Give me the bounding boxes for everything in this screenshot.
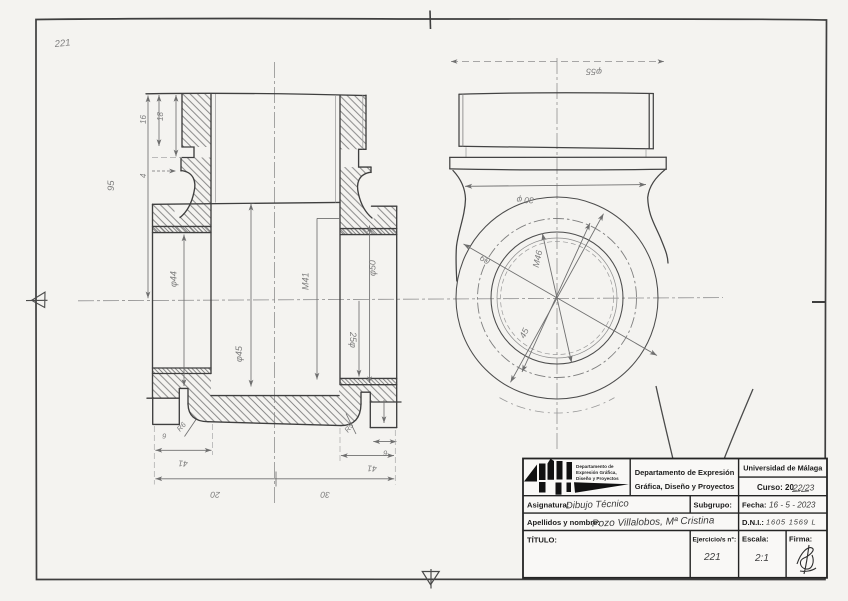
svg-text:D.N.I.:: D.N.I.:: [742, 518, 764, 527]
svg-text:TÍTULO:: TÍTULO:: [527, 536, 557, 545]
svg-text:Fecha:: Fecha:: [742, 501, 766, 510]
svg-text:Escala:: Escala:: [742, 535, 769, 544]
svg-text:Gráfica, Diseño y Proyectos: Gráfica, Diseño y Proyectos: [635, 482, 735, 491]
svg-text:1605 1569 L: 1605 1569 L: [766, 518, 817, 527]
svg-text:Ejercicio/s n°:: Ejercicio/s n°:: [693, 536, 737, 544]
svg-text:Apellidos y nombre:: Apellidos y nombre:: [527, 518, 600, 527]
svg-text:Departamento de Expresión: Departamento de Expresión: [635, 468, 735, 477]
svg-text:4: 4: [139, 173, 148, 178]
svg-text:221: 221: [703, 552, 721, 563]
svg-text:Firma:: Firma:: [789, 535, 812, 544]
svg-text:Departamento de: Departamento de: [576, 464, 614, 469]
svg-text:30: 30: [320, 490, 330, 500]
svg-text:φ50: φ50: [368, 260, 378, 276]
svg-text:41: 41: [367, 463, 377, 473]
svg-text:2:1: 2:1: [754, 553, 769, 564]
svg-text:221: 221: [53, 37, 71, 50]
svg-text:18: 18: [156, 112, 165, 121]
svg-text:Universidad de Málaga: Universidad de Málaga: [743, 464, 823, 473]
svg-text:Subgrupo:: Subgrupo:: [694, 501, 732, 510]
svg-text:M41: M41: [301, 272, 311, 290]
svg-text:20: 20: [210, 490, 221, 500]
svg-text:95: 95: [106, 180, 117, 191]
svg-text:φ55: φ55: [585, 67, 602, 77]
svg-text:φ45: φ45: [234, 345, 244, 362]
svg-text:41: 41: [178, 458, 188, 468]
svg-text:16 - 5 - 2023: 16 - 5 - 2023: [769, 501, 816, 510]
svg-text:Asignatura:: Asignatura:: [527, 501, 569, 510]
svg-text:φ44: φ44: [169, 271, 179, 287]
svg-text:25φ: 25φ: [348, 331, 358, 348]
svg-text:Curso: 20: Curso: 20: [757, 483, 794, 492]
svg-text:Dibujo Técnico: Dibujo Técnico: [566, 498, 629, 511]
svg-text:Expresión Gráfica,: Expresión Gráfica,: [576, 470, 617, 475]
svg-text:30 φ: 30 φ: [516, 195, 534, 206]
svg-text:Diseño y Proyectos: Diseño y Proyectos: [576, 476, 619, 481]
svg-text:16: 16: [139, 115, 148, 124]
